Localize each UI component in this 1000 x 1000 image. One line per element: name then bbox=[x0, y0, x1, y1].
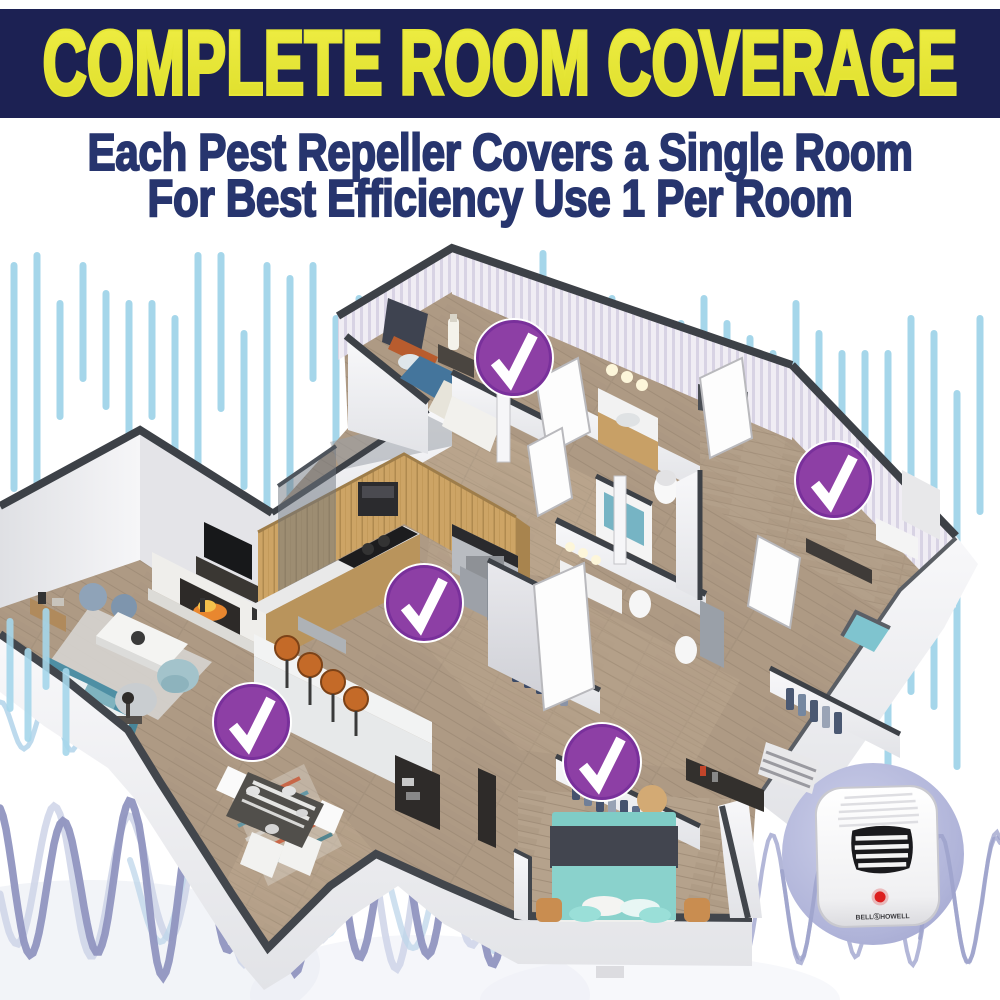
svg-text:COMPLETE ROOM COVERAGE: COMPLETE ROOM COVERAGE bbox=[42, 13, 957, 114]
svg-text:For Best Efficiency Use 1 Per: For Best Efficiency Use 1 Per Room bbox=[148, 170, 853, 228]
